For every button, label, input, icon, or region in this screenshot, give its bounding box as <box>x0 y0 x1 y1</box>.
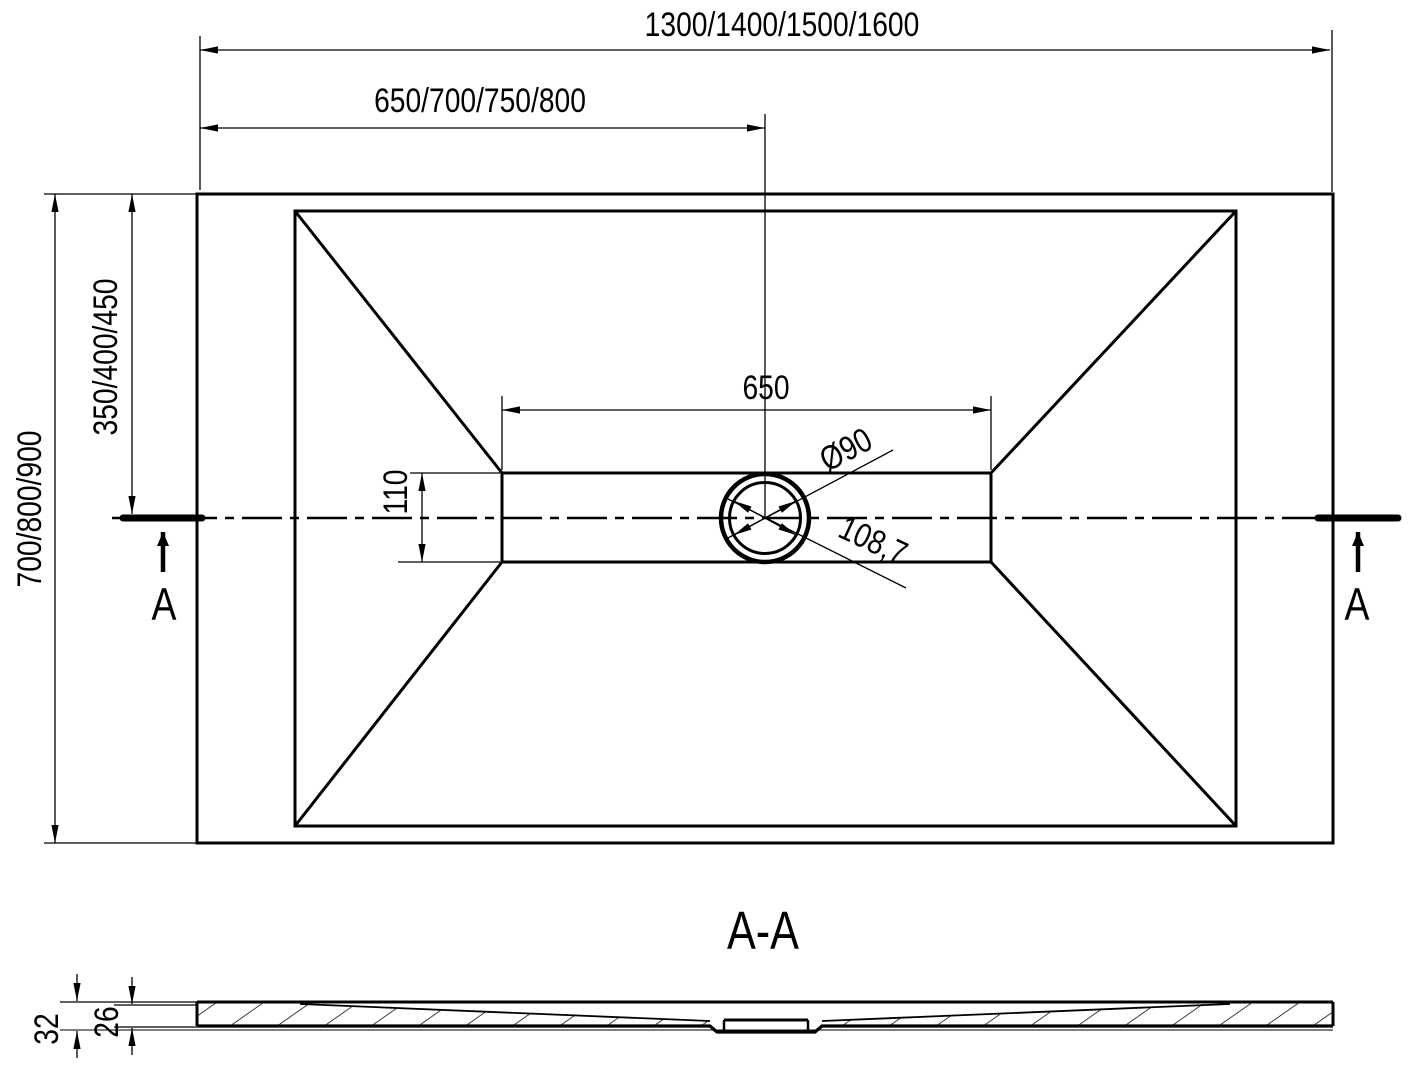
dim-total-thickness-label: 32 <box>30 1013 64 1044</box>
top-view-geometry <box>112 194 1398 843</box>
dim-half-width-label: 650/700/750/800 <box>374 84 586 118</box>
dim-band-width-label: 650 <box>742 371 789 405</box>
technical-drawing-page: 1300/1400/1500/1600 650/700/750/800 700/… <box>0 0 1414 1066</box>
section-bottom-edge <box>197 1026 1333 1032</box>
section-marker-a-left-label: A <box>152 582 177 627</box>
section-hatch-right <box>822 1002 1333 1026</box>
section-view-dimensions <box>60 974 197 1058</box>
section-marker-a-right-label: A <box>1345 582 1370 627</box>
section-hatch-left <box>197 1002 710 1026</box>
dim-band-height-label: 110 <box>379 469 413 514</box>
dim-half-height-label: 350/400/450 <box>89 279 123 436</box>
dim-overall-height-label: 700/800/900 <box>13 431 47 588</box>
section-view-geometry <box>60 1002 1333 1032</box>
section-view-title: A-A <box>727 904 799 958</box>
dim-overall-width-label: 1300/1400/1500/1600 <box>645 8 920 42</box>
dim-body-thickness-label: 26 <box>90 1006 124 1037</box>
section-drain-recess <box>724 1020 808 1031</box>
drawing-canvas <box>0 0 1414 1066</box>
